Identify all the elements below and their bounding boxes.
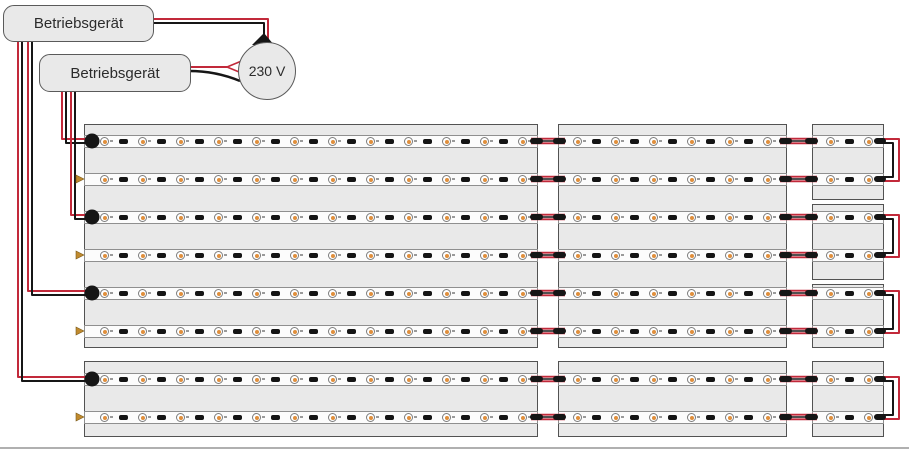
driver-box-1: Betriebsgerät xyxy=(3,5,154,42)
junction-dot xyxy=(85,286,100,301)
strip-input-arrow-icon xyxy=(76,251,84,259)
driver-box-2: Betriebsgerät xyxy=(39,54,191,92)
strip-input-arrow-icon xyxy=(76,413,84,421)
strip-input-arrow-icon xyxy=(76,175,84,183)
junction-dot xyxy=(85,134,100,149)
driver-box-2-label: Betriebsgerät xyxy=(70,65,159,82)
strip-input-arrow-icon xyxy=(76,327,84,335)
junction-dot xyxy=(85,210,100,225)
wiring-diagram: Betriebsgerät Betriebsgerät 230 V xyxy=(0,0,909,451)
mains-voltage-label: 230 V xyxy=(249,63,286,79)
mains-source-circle: 230 V xyxy=(238,42,296,100)
driver-box-1-label: Betriebsgerät xyxy=(34,15,123,32)
junction-dot xyxy=(85,372,100,387)
